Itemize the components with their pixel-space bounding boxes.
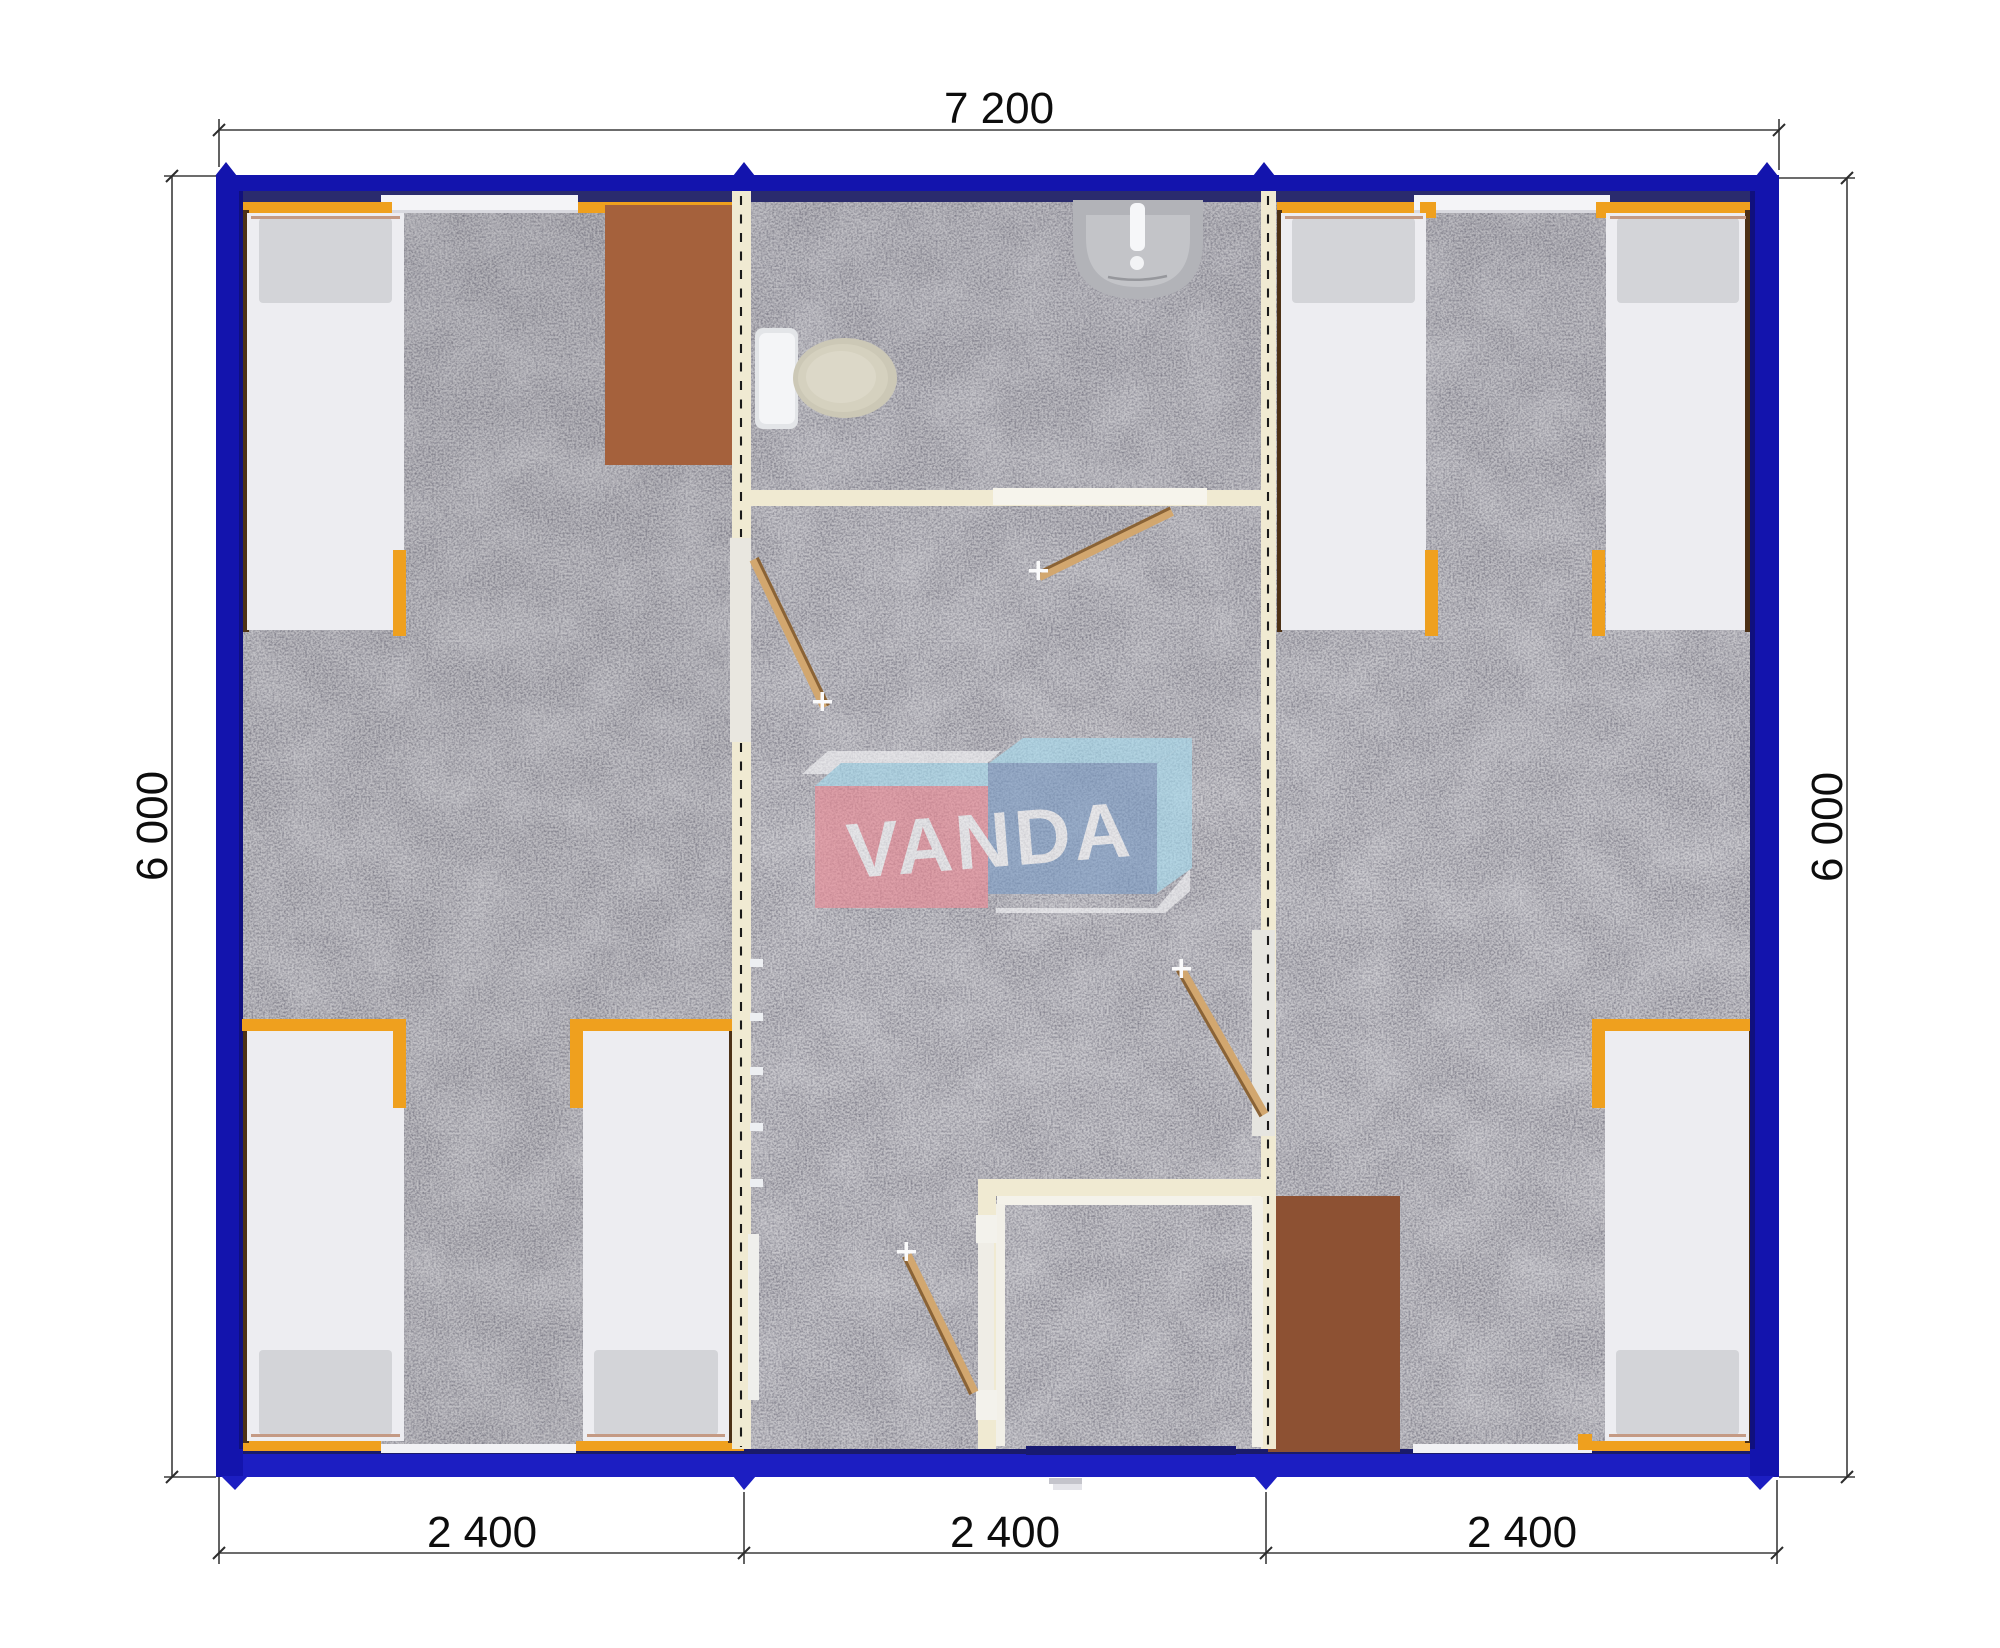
svg-text:6 000: 6 000 [128, 771, 177, 881]
svg-text:7 200: 7 200 [944, 84, 1054, 133]
svg-text:2 400: 2 400 [950, 1508, 1060, 1557]
svg-text:2 400: 2 400 [427, 1508, 537, 1557]
svg-text:2 400: 2 400 [1467, 1508, 1577, 1557]
svg-text:6 000: 6 000 [1803, 772, 1852, 882]
